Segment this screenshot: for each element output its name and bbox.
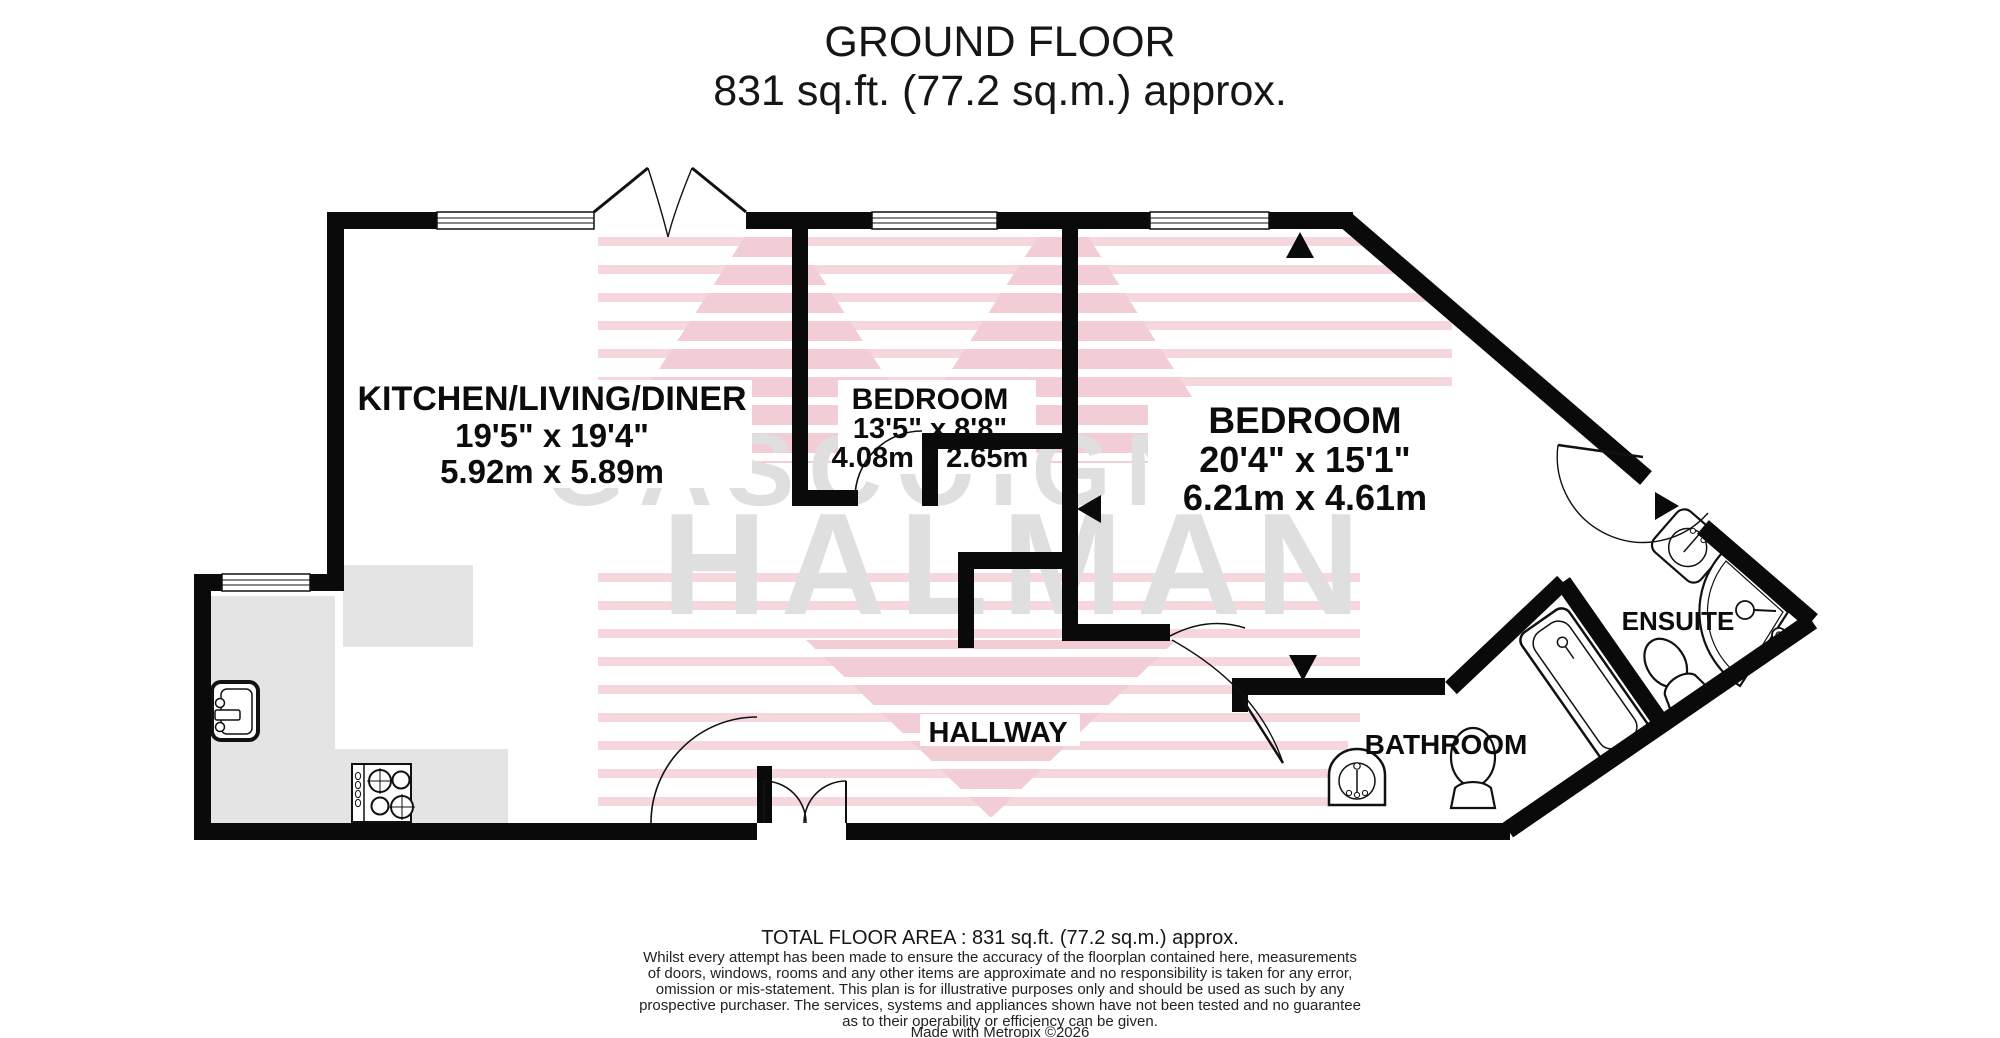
disclaimer-line: Whilst every attempt has been made to en… (643, 949, 1357, 966)
bedroom1-dims-imperial: 13'5" x 8'8" (853, 413, 1007, 445)
kitchen-label: KITCHEN/LIVING/DINER (357, 380, 746, 418)
bathroom-label: BATHROOM (1365, 729, 1528, 760)
bedroom2-dims-metric: 6.21m x 4.61m (1183, 477, 1427, 518)
bedroom1-dims-metric: 4.08m x 2.65m (832, 442, 1029, 474)
page-title: GROUND FLOOR (824, 18, 1175, 66)
disclaimer-line: omission or mis-statement. This plan is … (656, 981, 1345, 998)
total-floor-area: TOTAL FLOOR AREA : 831 sq.ft. (77.2 sq.m… (761, 927, 1239, 949)
kitchen-dims-metric: 5.92m x 5.89m (440, 453, 664, 490)
window (437, 212, 594, 229)
kitchen-island (343, 565, 473, 647)
page-subtitle: 831 sq.ft. (77.2 sq.m.) approx. (713, 67, 1287, 115)
bedroom1-label: BEDROOM (852, 383, 1009, 416)
window (1150, 212, 1269, 229)
floorplan-svg: GASCOIGNE HALMAN (0, 0, 2000, 1038)
hallway-label: HALLWAY (928, 717, 1067, 749)
disclaimer-line: of doors, windows, rooms and any other i… (648, 965, 1353, 982)
kitchen-sink-icon (212, 682, 258, 740)
french-door (594, 168, 746, 237)
stove-icon (352, 764, 415, 822)
bedroom2-dims-imperial: 20'4" x 15'1" (1199, 439, 1410, 480)
metropix-credit: Made with Metropix ©2026 (911, 1024, 1090, 1038)
bedroom2-label: BEDROOM (1208, 400, 1401, 441)
ensuite-label: ENSUITE (1622, 606, 1735, 636)
floorplan-page: GASCOIGNE HALMAN (0, 0, 2000, 1038)
window (222, 574, 310, 591)
title-block: GROUND FLOOR 831 sq.ft. (77.2 sq.m.) app… (713, 18, 1287, 115)
footer-block: TOTAL FLOOR AREA : 831 sq.ft. (77.2 sq.m… (639, 927, 1361, 1038)
disclaimer-line: prospective purchaser. The services, sys… (639, 997, 1361, 1014)
kitchen-dims-imperial: 19'5" x 19'4" (455, 417, 649, 454)
window (872, 212, 997, 229)
